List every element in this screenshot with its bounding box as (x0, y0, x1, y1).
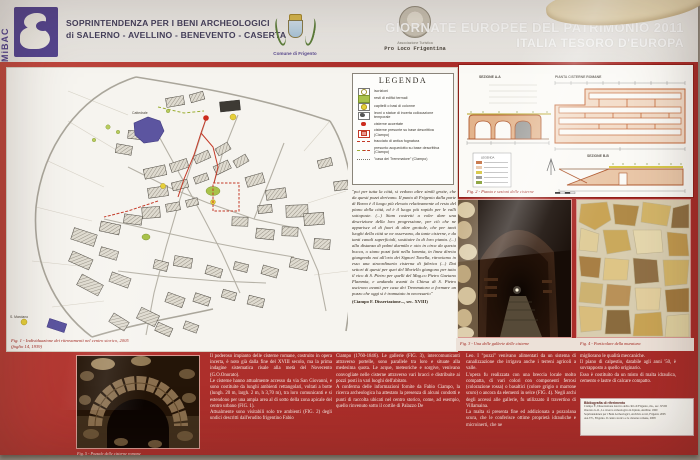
red-panel: Cattedrale S. Marciano LEGENDA iscrizion… (0, 62, 698, 455)
masonry-photo-art (577, 200, 690, 337)
svg-text:LEGENDA: LEGENDA (481, 156, 495, 160)
map-panel: Cattedrale S. Marciano LEGENDA iscrizion… (6, 67, 458, 352)
legend-item: leoni o statue di incerta collocazione t… (357, 111, 449, 120)
legend-item: capitelli o basi di colonne (357, 103, 449, 109)
scale-bar (555, 192, 575, 194)
fig1-caption-line2: (foglio 14, 1939) (11, 344, 42, 350)
fig4-photo (577, 200, 690, 337)
fig2-label-sezione-a: SEZIONE A-A (479, 75, 501, 79)
laurel-branch-icon (273, 17, 288, 46)
legend: LEGENDA iscrizioni resti di edifici term… (352, 73, 454, 185)
fig5-caption: Fig. 5 - Pozzale delle cisterne romane (77, 451, 141, 456)
article-col3: Leo. I "pozzi" venivano alimentati da un… (466, 354, 576, 429)
quote-text: "poi per tutta la città, si vedono altre… (352, 189, 456, 296)
map-label-cattedrale: Cattedrale (132, 111, 148, 115)
dark-building (220, 100, 241, 112)
ciampo-quote: "poi per tutta la città, si vedono altre… (352, 189, 456, 347)
caption-band: Fig. 3 - Una delle gallerie delle cister… (456, 338, 694, 351)
mibac-logo (14, 7, 58, 57)
capital-icon (357, 103, 371, 109)
soprintendenza-line1: SOPRINTENDENZA PER I BENI ARCHEOLOGICI (66, 18, 286, 30)
fig3-photo (458, 200, 571, 337)
fig2-caption: Fig. 2 - Pianta e sezioni delle cisterne (467, 189, 534, 195)
bibliography-line: AA.VV., Frigento. Il centro storico e le… (584, 417, 690, 421)
fig2-panel: SEZIONE A-A PIANTA CISTERNE ROMANE SEZIO… (458, 64, 694, 198)
article-col1: Il poderoso impianto delle cisterne roma… (210, 354, 332, 423)
legend-item: cisterne presunte su base descrittiva (C… (357, 128, 449, 137)
shield-icon (288, 20, 303, 38)
fig4-caption: Fig. 4 - Particolare della muratura (580, 341, 640, 347)
event-title: GIORNATE EUROPEE DEL PATRIMONIO 2011 ITA… (385, 20, 684, 50)
article-col2: Ciampo (1760-1846). Le gallerie (FIG. 3)… (336, 354, 460, 410)
header: MiBAC SOPRINTENDENZA PER I BENI ARCHEOLO… (0, 0, 698, 62)
legend-title: LEGENDA (357, 77, 449, 86)
event-line2: ITALIA TESORO D'EUROPA (385, 36, 684, 50)
comune-coat-of-arms: Comune di Frigento (268, 8, 322, 60)
fig2-label-sezione-b: SEZIONE B-B (587, 154, 609, 158)
town-map: Cattedrale S. Marciano (8, 71, 348, 343)
soprintendenza-line2: di SALERNO - AVELLINO - BENEVENTO - CASE… (66, 30, 286, 42)
soprintendenza-title: SOPRINTENDENZA PER I BENI ARCHEOLOGICI d… (66, 18, 286, 41)
mibac-vertical-label: MiBAC (1, 10, 13, 62)
legend-item: "casa dei Tremmatore" (Ciampo) (357, 156, 449, 162)
fig2-mini-legend: LEGENDA (473, 153, 511, 187)
fig5-photo (77, 356, 199, 448)
legend-item: cisterne accertate (357, 121, 449, 127)
legend-item: presunto acquedotto su base descrittiva … (357, 146, 449, 155)
statue-icon (357, 112, 371, 118)
quote-source: (Ciampo F. Dissertazione..., sec. XVIII) (352, 299, 456, 305)
poster: MiBAC SOPRINTENDENZA PER I BENI ARCHEOLO… (0, 0, 698, 455)
laurel-branch-icon (303, 17, 318, 46)
legend-item: tracciato di antica fognatura (357, 138, 449, 144)
legend-item: resti di edifici termali (357, 95, 449, 101)
bibliography-box: Bibliografia di riferimento Ciampo F., D… (580, 398, 694, 436)
aqueduct-line-icon (357, 147, 371, 153)
presumed-cistern-icon (357, 130, 371, 136)
arch-photo-art (77, 356, 199, 448)
mibac-sculpture-shadow (36, 21, 50, 31)
inscription-icon (357, 88, 371, 94)
comune-label: Comune di Frigento (258, 52, 332, 57)
cistern-icon (357, 121, 371, 127)
gallery-photo-art (458, 200, 571, 337)
sewer-line-icon (357, 138, 371, 144)
casa-line-icon (357, 156, 371, 162)
fig2-label-pianta: PIANTA CISTERNE ROMANE (555, 75, 602, 79)
article-col4: migliorano le qualità meccaniche. Il pia… (580, 354, 676, 385)
fig2-drawing: SEZIONE A-A PIANTA CISTERNE ROMANE SEZIO… (459, 65, 692, 196)
map-label-s-marciano: S. Marciano (10, 315, 28, 319)
fig3-caption: Fig. 3 - Una delle gallerie delle cister… (460, 341, 529, 347)
thermal-icon (357, 95, 371, 101)
legend-item: iscrizioni (357, 88, 449, 94)
poster-photo: MiBAC SOPRINTENDENZA PER I BENI ARCHEOLO… (0, 0, 700, 460)
